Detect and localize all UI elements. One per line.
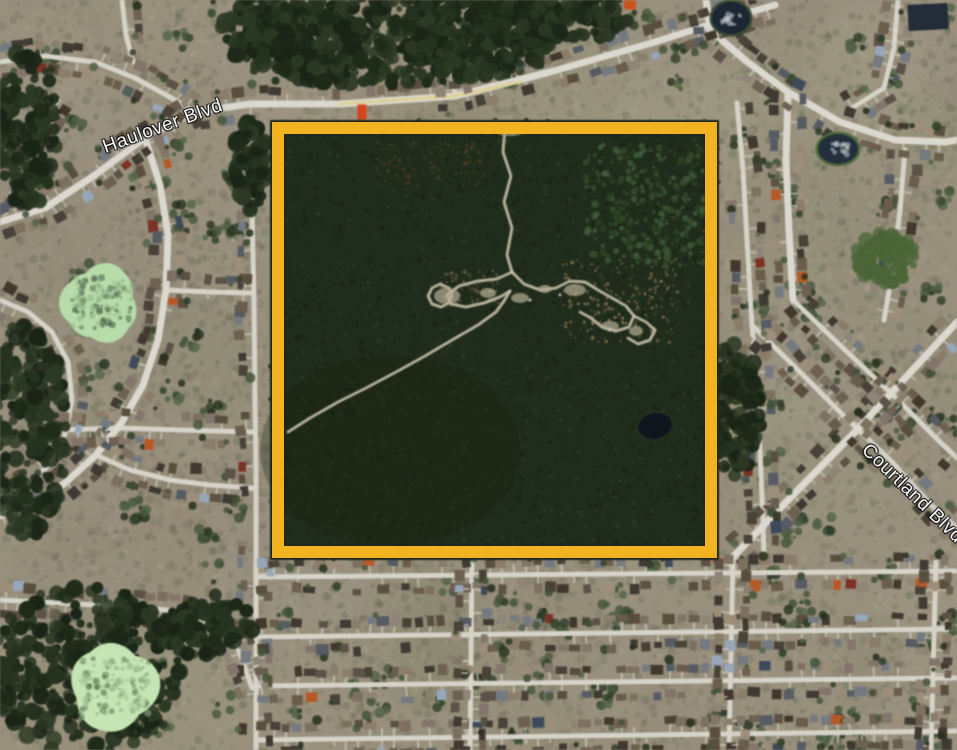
- satellite-map-viewport[interactable]: Haulover Blvd Courtland Blvd: [0, 0, 957, 750]
- satellite-imagery-canvas: [0, 0, 957, 750]
